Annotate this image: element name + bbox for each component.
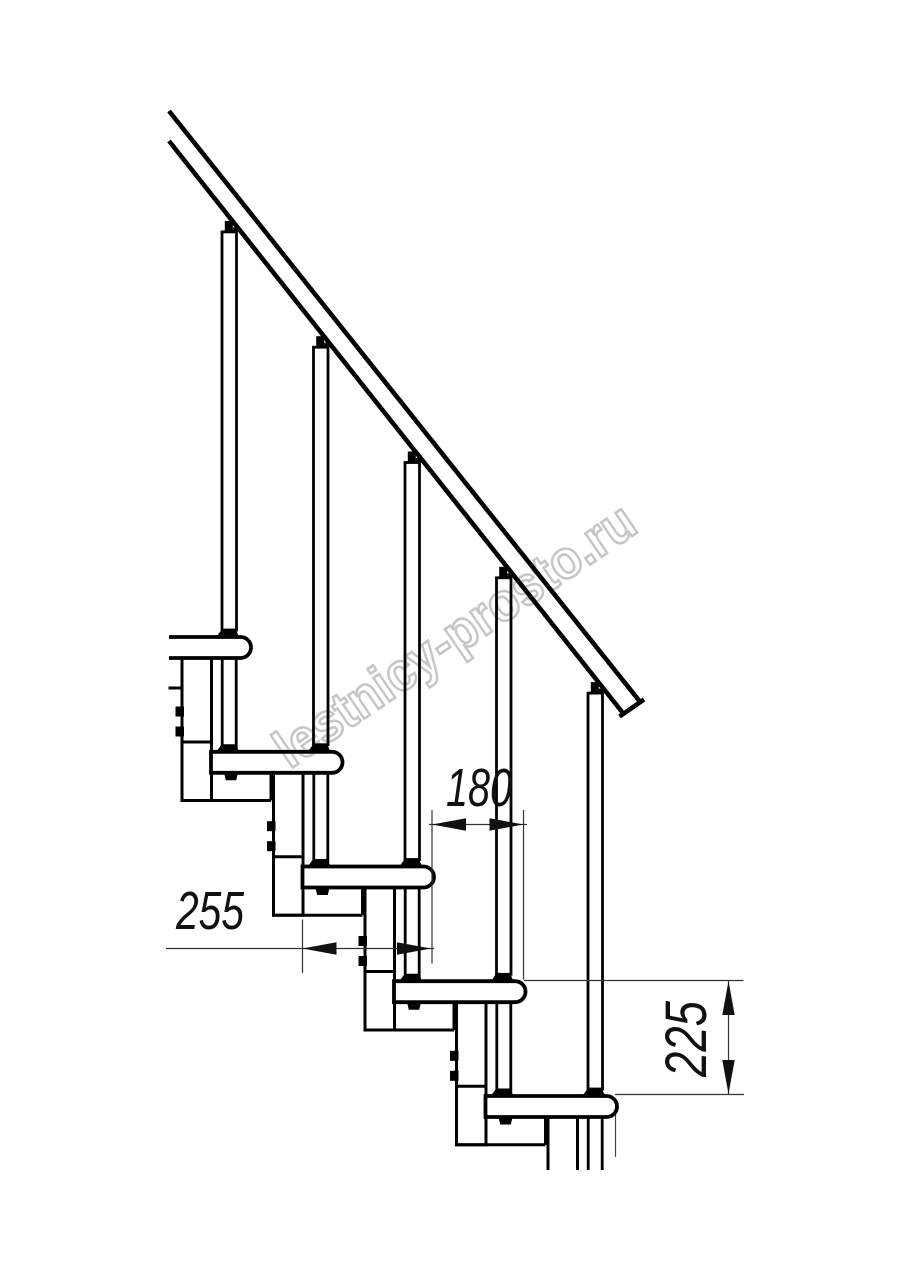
- svg-text:225: 225: [654, 1000, 719, 1077]
- svg-text:180: 180: [446, 758, 512, 818]
- svg-text:255: 255: [175, 881, 244, 941]
